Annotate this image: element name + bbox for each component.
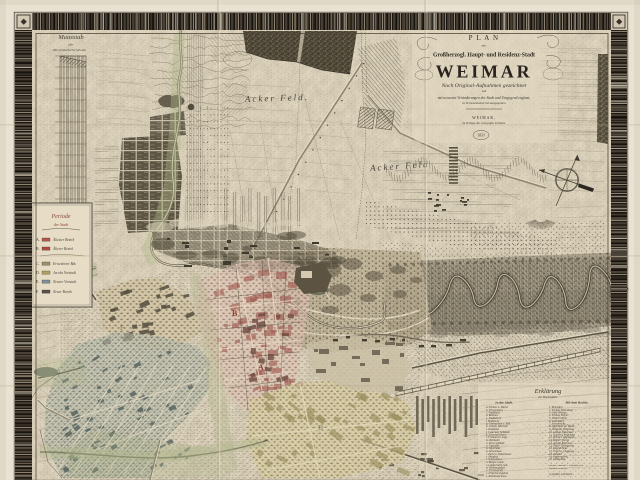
svg-text:B.: B. [36,246,40,251]
svg-text:Ältester Bezirk: Ältester Bezirk [52,237,75,242]
svg-text:WEIMAR: WEIMAR [436,62,533,82]
svg-text:in Schwarzkunst herausgegeben: in Schwarzkunst herausgegeben [462,101,506,105]
svg-text:Periode: Periode [51,214,71,220]
svg-text:In der Stadt.: In der Stadt. [494,401,513,405]
svg-text:Neuer Bezirk: Neuer Bezirk [52,290,72,294]
svg-text:Nach Original-Aufnahmen gezeic: Nach Original-Aufnahmen gezeichnet [441,82,527,89]
svg-text:B: B [232,309,238,318]
svg-text:der Stadt: der Stadt [54,222,69,227]
svg-text:Jacobs Vorstadt: Jacobs Vorstadt [53,271,77,275]
svg-text:400 weimarische Schuhe: 400 weimarische Schuhe [52,48,86,52]
svg-text:F.: F. [36,289,39,294]
svg-text:über: über [68,43,74,47]
svg-text:C.: C. [36,261,40,266]
svg-text:C: C [128,398,133,406]
svg-text:Älterer Bezirk: Älterer Bezirk [52,246,74,251]
svg-text:der: der [482,44,487,48]
svg-text:Erklärung: Erklärung [534,388,562,395]
svg-text:Neuere Vorstadt: Neuere Vorstadt [52,280,77,284]
svg-text:D.: D. [36,270,40,275]
svg-text:z. Residenzschloss: z. Residenzschloss [485,475,507,478]
svg-text:Großherzogl. Haupt- und Reside: Großherzogl. Haupt- und Residenz-Stadt [433,53,535,59]
svg-text:F: F [120,324,124,332]
svg-text:1833: 1833 [477,134,484,138]
svg-text:und: und [482,90,487,93]
svg-text:A.: A. [36,237,40,242]
svg-text:Maasstab: Maasstab [57,34,84,41]
svg-text:P L A N: P L A N [469,34,500,42]
svg-text:Erweiterter Bzk: Erweiterter Bzk [52,262,76,266]
svg-text:A: A [258,363,264,372]
svg-text:D: D [318,424,323,432]
svg-text:Mit dem Rechte.: Mit dem Rechte. [565,401,589,405]
svg-text:E.: E. [36,279,39,284]
